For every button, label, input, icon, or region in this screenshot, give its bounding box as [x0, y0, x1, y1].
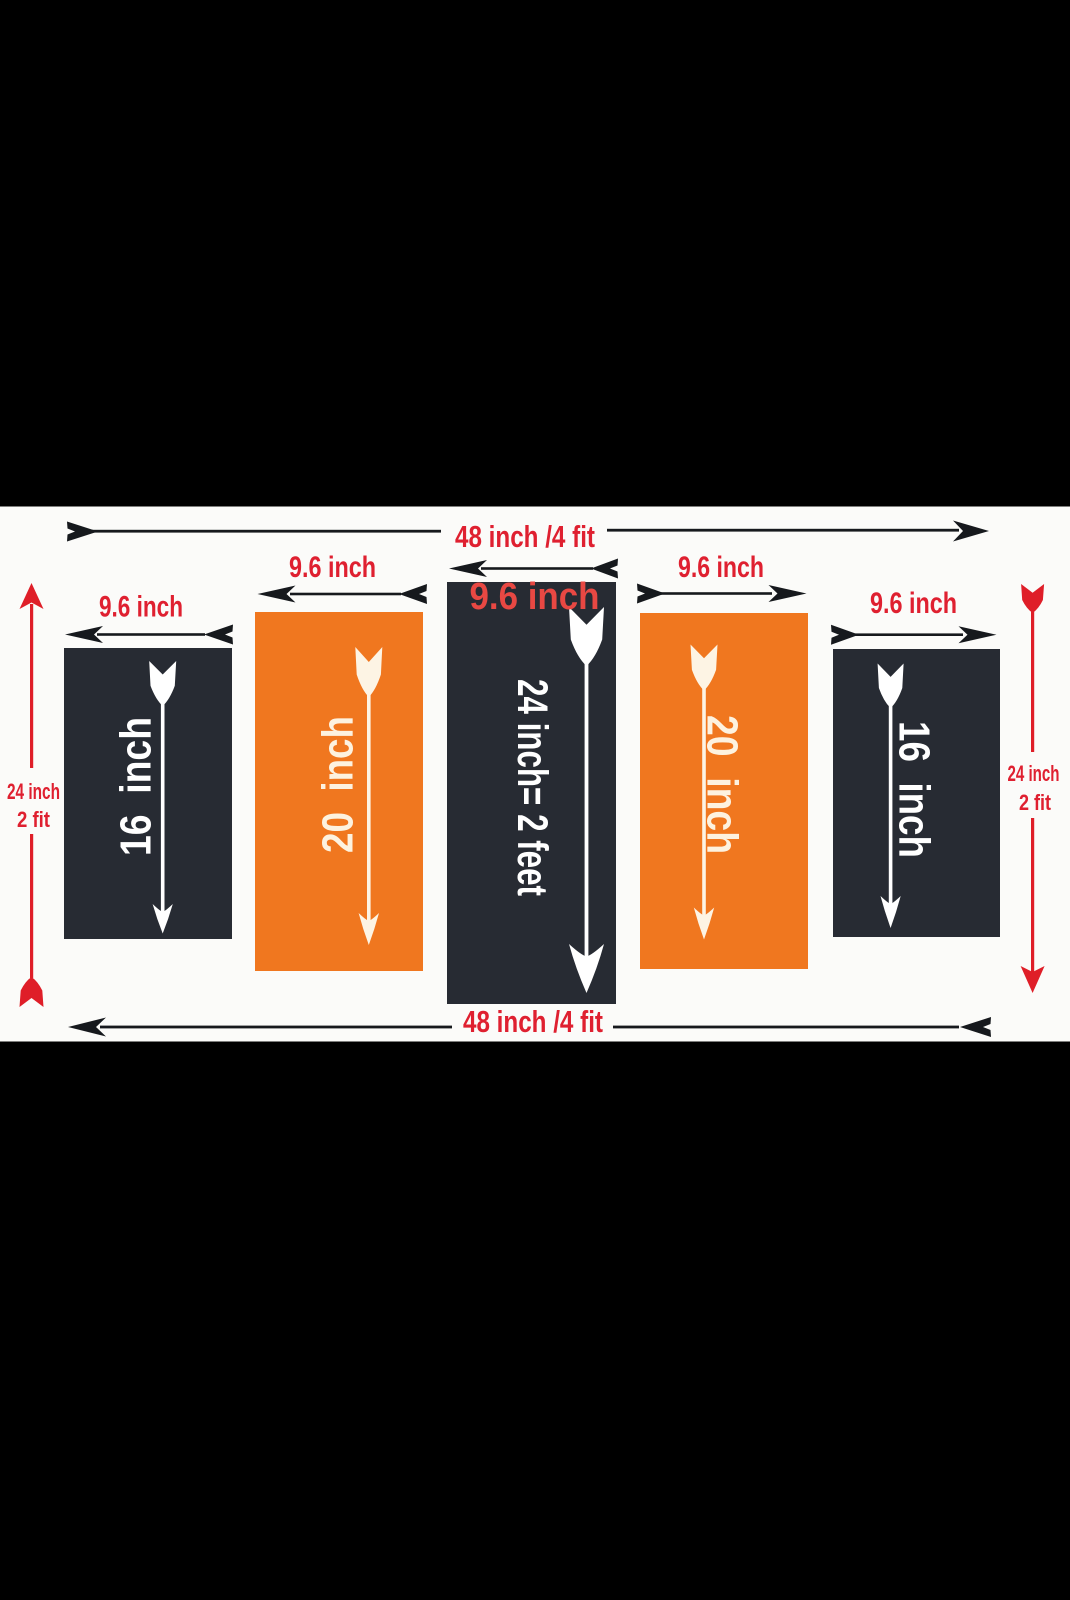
- svg-text:24 inch: 24 inch: [1008, 761, 1060, 786]
- svg-text:48 inch /4 fit: 48 inch /4 fit: [463, 1004, 603, 1039]
- svg-text:20 inch: 20 inch: [698, 715, 747, 854]
- svg-text:20 inch: 20 inch: [314, 716, 363, 853]
- svg-text:9.6 inch: 9.6 inch: [470, 576, 600, 618]
- svg-text:9.6 inch: 9.6 inch: [99, 591, 183, 624]
- svg-text:9.6 inch: 9.6 inch: [870, 587, 957, 620]
- svg-text:48 inch /4 fit: 48 inch /4 fit: [455, 519, 595, 554]
- svg-text:16 inch: 16 inch: [112, 717, 161, 856]
- svg-text:24 inch: 24 inch: [7, 779, 60, 804]
- svg-text:9.6 inch: 9.6 inch: [289, 551, 376, 584]
- svg-text:2 fit: 2 fit: [17, 807, 51, 832]
- svg-text:9.6 inch: 9.6 inch: [678, 551, 764, 584]
- svg-text:2 fit: 2 fit: [1019, 790, 1052, 815]
- svg-text:24 inch= 2 feet: 24 inch= 2 feet: [508, 679, 556, 896]
- svg-text:16 inch: 16 inch: [890, 721, 939, 858]
